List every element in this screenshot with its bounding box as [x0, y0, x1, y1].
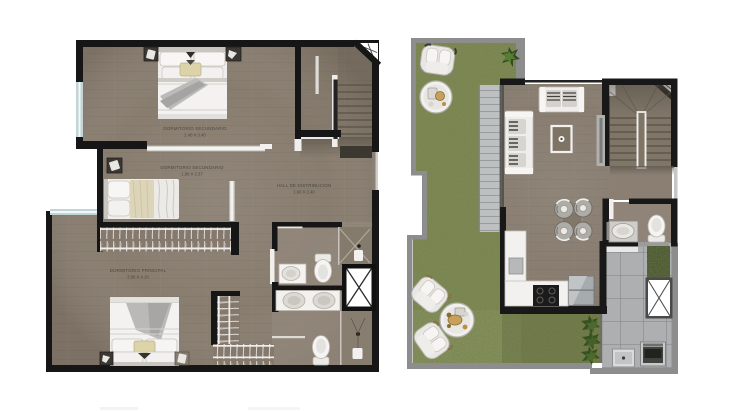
svg-text:1.90 X 2.40: 1.90 X 2.40: [293, 190, 315, 195]
svg-text:DORMITORIO SECUNDARIO: DORMITORIO SECUNDARIO: [163, 126, 227, 131]
svg-text:2.40 X 3.40: 2.40 X 3.40: [184, 133, 206, 138]
svg-text:DORMITORIO SECUNDARIO: DORMITORIO SECUNDARIO: [160, 165, 224, 170]
svg-text:3.06 X 4.10: 3.06 X 4.10: [127, 275, 149, 280]
svg-text:HALL DE DISTRIBUCIÓN: HALL DE DISTRIBUCIÓN: [277, 183, 332, 188]
svg-text:1.90 X 3.37: 1.90 X 3.37: [181, 172, 203, 177]
svg-text:DORMITORIO PRINCIPAL: DORMITORIO PRINCIPAL: [110, 268, 167, 273]
